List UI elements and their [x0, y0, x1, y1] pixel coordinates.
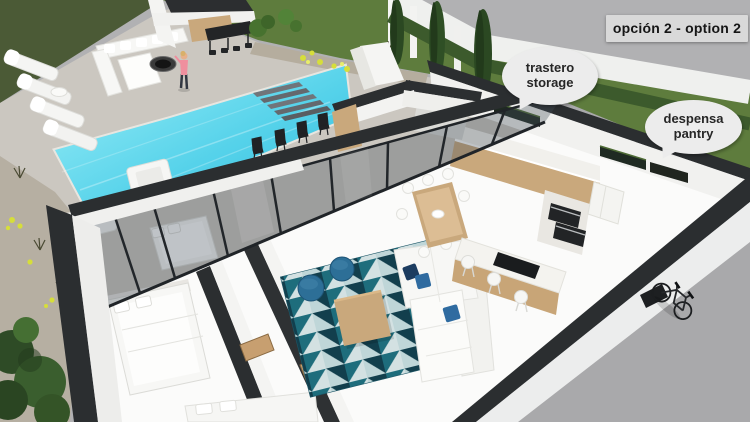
fire-pit: [150, 57, 176, 72]
pantry-callout-line1: despensa: [664, 112, 724, 127]
villa-floorplan-render: opción 2 - option 2 trastero storage des…: [0, 0, 750, 422]
storage-callout: trastero storage: [502, 47, 598, 105]
side-table: [51, 88, 67, 97]
pantry-callout: despensa pantry: [645, 100, 742, 154]
pantry-callout-line2: pantry: [674, 127, 714, 142]
scene-3d-render: [0, 0, 750, 422]
storage-callout-line1: trastero: [526, 61, 574, 76]
option-label: opción 2 - option 2: [606, 15, 748, 42]
storage-callout-line2: storage: [527, 76, 574, 91]
coffee-table: [334, 291, 394, 349]
